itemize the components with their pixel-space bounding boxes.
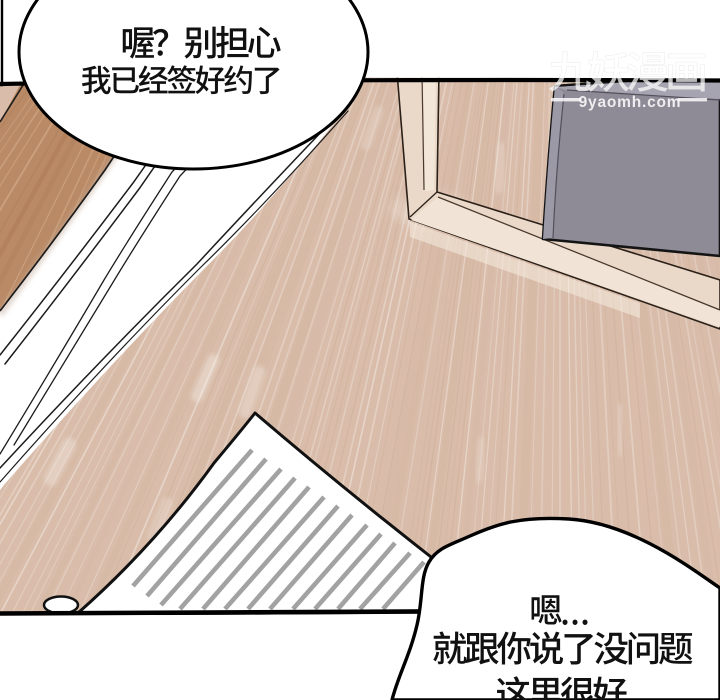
svg-text:9yaomh.com: 9yaomh.com [579, 94, 682, 111]
